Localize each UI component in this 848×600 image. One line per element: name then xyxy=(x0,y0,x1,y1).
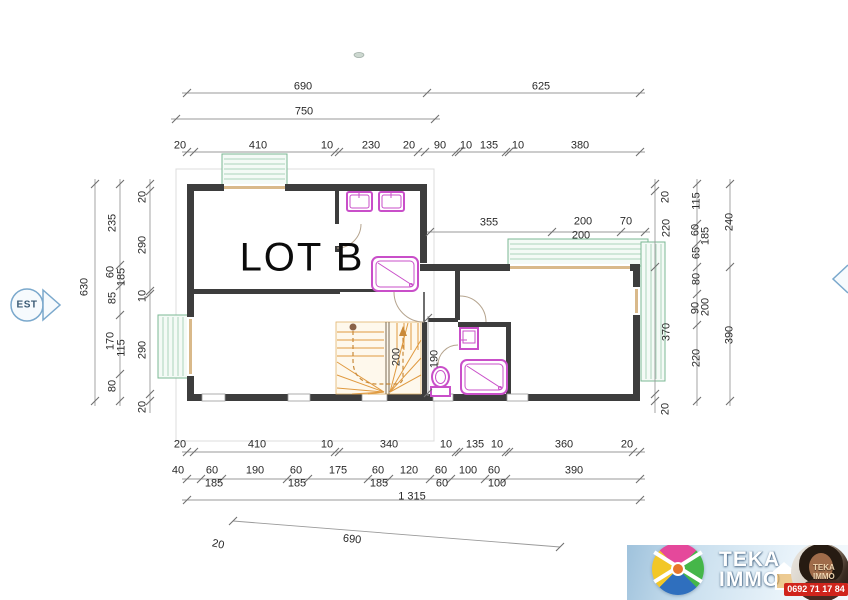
agency-name-line2: IMMO xyxy=(719,570,780,590)
slanted-dimension xyxy=(229,517,564,551)
dim-label: 290 xyxy=(138,236,149,254)
dim-label: 240 xyxy=(725,213,736,231)
avatar-watermark: TEKA IMMO xyxy=(813,563,835,581)
dim-label: 10 xyxy=(321,141,333,152)
staircase xyxy=(336,322,421,394)
dim-label: 10 xyxy=(491,440,503,451)
dim-label: 80 xyxy=(108,380,119,392)
compass-partial-right xyxy=(833,265,848,293)
dim-label: 185 xyxy=(288,479,306,490)
dim-label: 135 xyxy=(466,440,484,451)
dim-label: 185 xyxy=(117,268,128,286)
dim-label: 10 xyxy=(138,290,149,302)
floor-plan-page: { "page": { "title_label": "LOT B" }, "c… xyxy=(0,0,848,600)
dim-label: 390 xyxy=(565,466,583,477)
logo-sphere-core xyxy=(671,562,685,576)
compass-arrow-east xyxy=(43,290,60,320)
dim-label: 340 xyxy=(380,440,398,451)
dim-label: 220 xyxy=(662,219,673,237)
dim-label: 20 xyxy=(174,440,186,451)
dim-label: 200 xyxy=(572,231,590,242)
dim-label: 10 xyxy=(321,440,333,451)
dim-label: 1 315 xyxy=(398,492,426,503)
dim-label: 220 xyxy=(692,349,703,367)
dim-label: 355 xyxy=(480,218,498,229)
dim-label: 60 xyxy=(435,466,447,477)
dim-label: 290 xyxy=(138,341,149,359)
dim-label: 380 xyxy=(571,141,589,152)
dim-label: 40 xyxy=(172,466,184,477)
dim-label: 20 xyxy=(621,440,633,451)
dim-label: 60 xyxy=(436,479,448,490)
dim-label: 20 xyxy=(403,141,415,152)
toilet-tank xyxy=(431,387,450,396)
dim-label: 200 xyxy=(392,348,403,366)
dim-label: 60 xyxy=(206,466,218,477)
dim-label: 200 xyxy=(574,217,592,228)
dim-label: 120 xyxy=(400,466,418,477)
dim-label: 20 xyxy=(174,141,186,152)
agency-logo-icon xyxy=(652,545,704,595)
dim-label: 20 xyxy=(138,191,149,203)
dim-label: 185 xyxy=(370,479,388,490)
dim-label: 20 xyxy=(211,538,225,551)
phone-number-badge: 0692 71 17 84 xyxy=(784,583,848,596)
dim-label: 690 xyxy=(294,82,312,93)
dim-label: 60 xyxy=(372,466,384,477)
dim-label: 390 xyxy=(725,326,736,344)
dim-label: 20 xyxy=(661,403,672,415)
dim-label: 100 xyxy=(459,466,477,477)
dim-label: 90 xyxy=(434,141,446,152)
dim-label: 370 xyxy=(662,323,673,341)
dim-label: 625 xyxy=(532,82,550,93)
dim-label: 230 xyxy=(362,141,380,152)
north-marker xyxy=(354,53,364,58)
dim-label: 65 xyxy=(692,247,703,259)
dim-label: 10 xyxy=(440,440,452,451)
dim-label: 630 xyxy=(80,278,91,296)
dim-label: 190 xyxy=(430,350,441,368)
dim-label: 85 xyxy=(108,292,119,304)
dim-label: 190 xyxy=(246,466,264,477)
dim-label: 410 xyxy=(248,440,266,451)
dim-label: 10 xyxy=(460,141,472,152)
dim-label: 20 xyxy=(661,191,672,203)
compass-east-label: EST xyxy=(17,300,38,311)
lot-title: LOT B xyxy=(240,236,365,281)
dim-label: 690 xyxy=(342,534,361,547)
dim-label: 100 xyxy=(488,479,506,490)
dim-label: 70 xyxy=(620,217,632,228)
dim-label: 20 xyxy=(138,401,149,413)
dim-label: 115 xyxy=(692,192,703,210)
dim-label: 135 xyxy=(480,141,498,152)
floor-plan-drawing xyxy=(0,0,848,600)
dim-label: 115 xyxy=(117,339,128,357)
dim-label: 410 xyxy=(249,141,267,152)
dim-label: 750 xyxy=(295,107,313,118)
dim-label: 60 xyxy=(290,466,302,477)
dim-label: 10 xyxy=(512,141,524,152)
dim-label: 185 xyxy=(701,227,712,245)
dim-label: 235 xyxy=(108,214,119,232)
dim-label: 60 xyxy=(488,466,500,477)
dim-label: 80 xyxy=(692,273,703,285)
stair-start-dot xyxy=(350,324,357,331)
dim-label: 185 xyxy=(205,479,223,490)
dim-label: 200 xyxy=(701,298,712,316)
dim-label: 360 xyxy=(555,440,573,451)
dim-label: 175 xyxy=(329,466,347,477)
agency-logo-bar: TEKA IMMO TEKA IMMO 0692 71 17 84 xyxy=(627,545,848,600)
